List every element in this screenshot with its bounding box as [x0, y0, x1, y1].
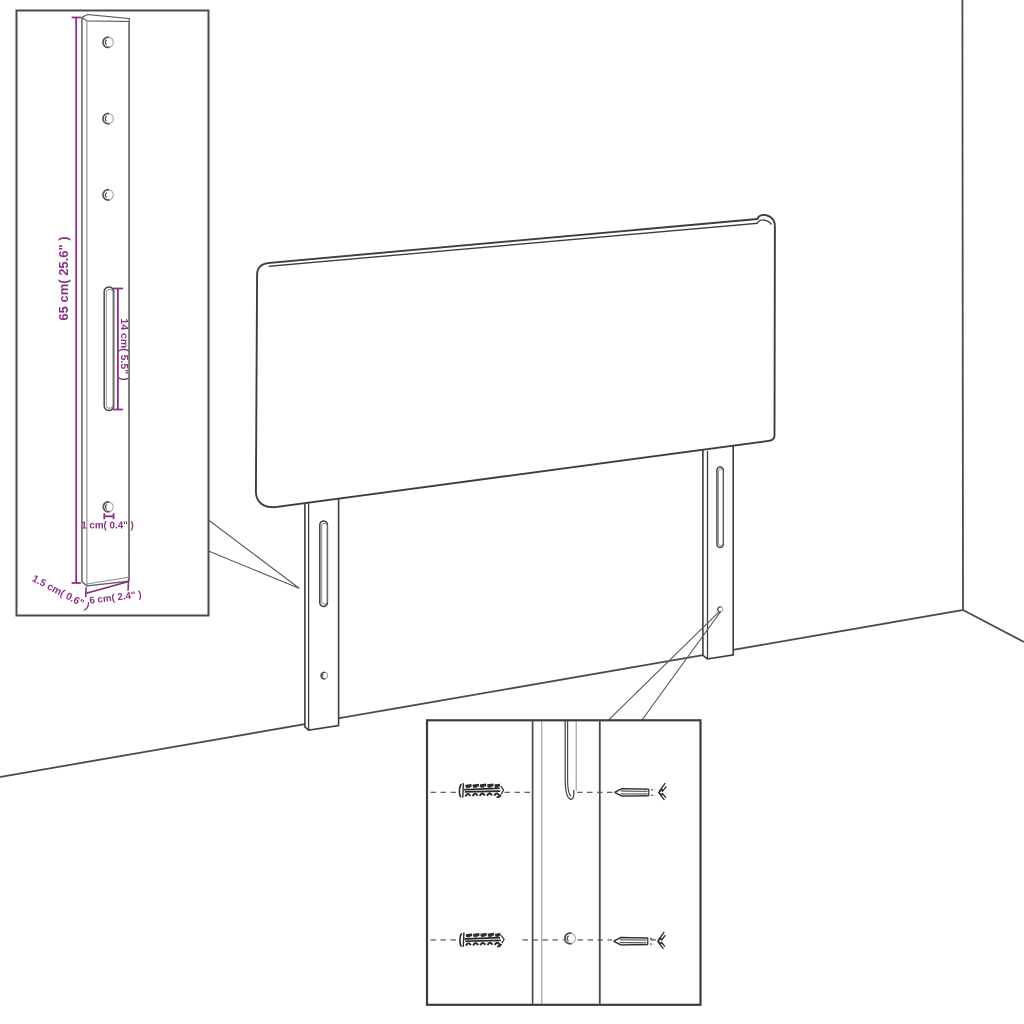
svg-text:1 cm( 0.4" ): 1 cm( 0.4" ): [81, 521, 134, 532]
svg-text:65 cm( 25.6" ): 65 cm( 25.6" ): [56, 236, 71, 320]
svg-text:14 cm( 5.5" ): 14 cm( 5.5" ): [118, 318, 130, 380]
